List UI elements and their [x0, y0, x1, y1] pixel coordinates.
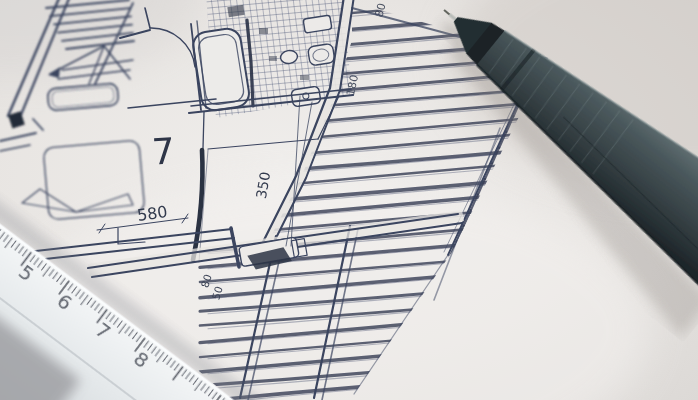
photo-architectural-plan: 180 80	[0, 0, 698, 400]
room-number: 7	[151, 130, 176, 172]
bidet	[291, 86, 321, 107]
photo-canvas: 180 80	[0, 0, 698, 400]
toilet	[307, 43, 335, 66]
